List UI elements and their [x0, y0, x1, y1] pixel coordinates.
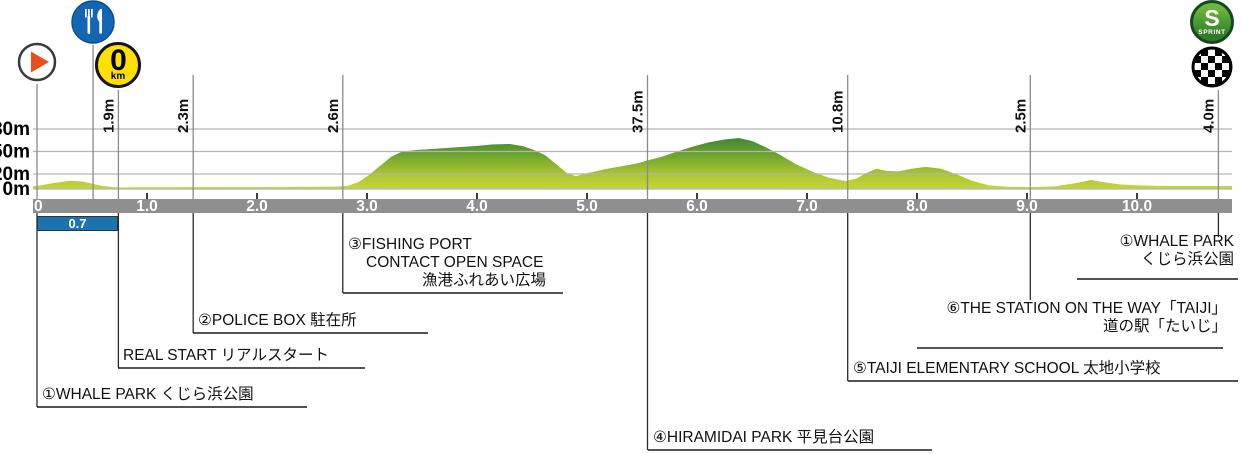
km-tick-label: 4.0 [466, 198, 488, 215]
label-hiramidai-park: ④HIRAMIDAI PARK 平見台公園 [653, 429, 874, 447]
elevation-label-finish: 4.0m [1200, 99, 1217, 133]
km-tick-label: 2.0 [246, 198, 268, 215]
y-axis-label: 50m [0, 142, 30, 163]
section-distance-value: 0.7 [68, 216, 86, 231]
y-axis-label: 80m [0, 119, 30, 140]
sprint-icon: S SPRINT [1190, 0, 1234, 44]
label-fishing-port: ③FISHING PORT CONTACT OPEN SPACE 漁港ふれあい広… [348, 236, 546, 290]
km-tick-label: 6.0 [686, 198, 708, 215]
checkered-flag-icon [1191, 46, 1233, 88]
start-icon [17, 42, 57, 82]
elevation-profile-area [33, 138, 1233, 189]
zero-km-unit: km [111, 72, 125, 81]
label-real-start: REAL START リアルスタート [123, 347, 329, 365]
elevation-label-station: 2.5m [1012, 99, 1029, 133]
elevation-label-police_box: 2.3m [175, 99, 192, 133]
km-tick-label: 1.0 [136, 198, 158, 215]
km-tick-label: 0 [34, 198, 43, 215]
section-distance-box: 0.7 [37, 216, 118, 231]
km-tick-label: 3.0 [356, 198, 378, 215]
km-tick-label: 10.0 [1122, 198, 1152, 215]
km-tick-label: 8.0 [906, 198, 928, 215]
zero-km-icon: 0 km [95, 42, 141, 88]
play-icon [17, 42, 57, 82]
km-tick-label: 5.0 [576, 198, 598, 215]
fork-knife-icon [71, 0, 115, 44]
km-tick-label: 9.0 [1016, 198, 1038, 215]
elevation-label-real_start: 1.9m [100, 99, 117, 133]
label-station-on-the-way: ⑥THE STATION ON THE WAY「TAIJI」 道の駅「たいじ」 [946, 300, 1227, 336]
elevation-label-hiramidai_park: 37.5m [630, 90, 647, 133]
elevation-label-elementary_school: 10.8m [830, 90, 847, 133]
label-taiji-elementary-school: ⑤TAIJI ELEMENTARY SCHOOL 太地小学校 [853, 360, 1161, 378]
feed-zone-icon [71, 0, 115, 44]
sprint-word: SPRINT [1198, 29, 1225, 36]
distance-bar [33, 199, 1232, 213]
label-whale-park-finish: ①WHALE PARK くじら浜公園 [1120, 233, 1234, 269]
label-whale-park-start: ①WHALE PARK くじら浜公園 [42, 386, 254, 404]
course-profile-graphic: 1.9m2.3m2.6m37.5m10.8m2.5m4.0m01.02.03.0… [0, 0, 1241, 454]
y-axis-label: 0m [3, 179, 30, 200]
elevation-label-fishing_port: 2.6m [325, 99, 342, 133]
finish-icon [1191, 46, 1233, 88]
zero-km-number: 0 [110, 49, 126, 72]
sprint-letter: S [1204, 8, 1219, 29]
label-police-box: ②POLICE BOX 駐在所 [198, 312, 357, 330]
km-tick-label: 7.0 [796, 198, 818, 215]
